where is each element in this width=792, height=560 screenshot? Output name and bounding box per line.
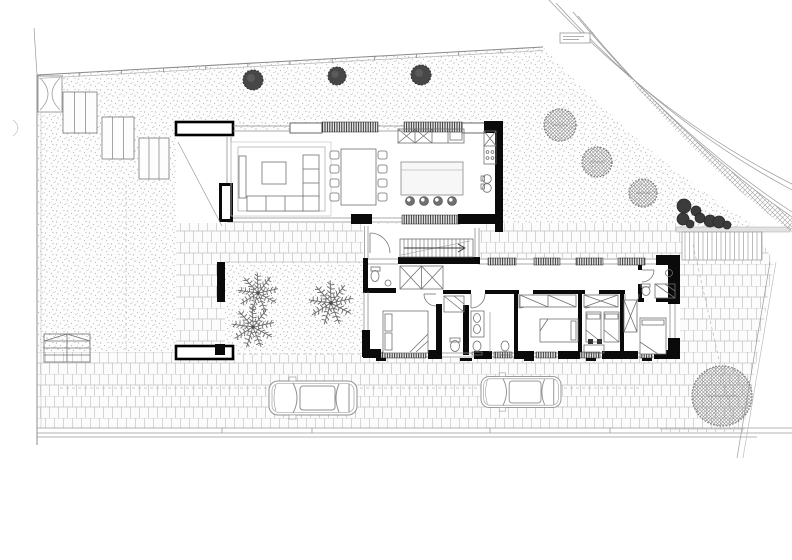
planter xyxy=(102,117,134,159)
bed xyxy=(586,312,601,342)
walkway-edge xyxy=(676,227,790,232)
entry-canopy xyxy=(176,122,233,135)
car xyxy=(269,377,357,419)
car xyxy=(481,373,561,411)
hall-floor xyxy=(363,224,480,260)
planter-box xyxy=(102,117,134,159)
bed xyxy=(604,312,619,342)
garden-steps xyxy=(682,232,762,260)
planter xyxy=(63,92,97,133)
driveway-paving xyxy=(37,352,740,428)
kitchen-island xyxy=(401,162,463,195)
floor-plan xyxy=(0,0,792,560)
courtyard-gravel xyxy=(225,262,365,355)
shrub-icon xyxy=(695,213,705,223)
tree-dark-highlight xyxy=(247,74,255,82)
planter-box xyxy=(63,92,97,133)
shrub-icon xyxy=(686,220,694,228)
bed xyxy=(640,318,666,354)
entry-gate xyxy=(38,76,62,112)
master-bedroom-furniture xyxy=(383,311,428,353)
tree-dark-highlight xyxy=(415,69,423,77)
ground-regions xyxy=(37,47,790,432)
planter-box xyxy=(139,138,169,179)
shrub-icon xyxy=(723,221,731,229)
road-sign-label xyxy=(560,33,590,43)
planter xyxy=(139,138,169,179)
hall-wardrobe xyxy=(400,266,443,289)
tree-dark-highlight xyxy=(332,71,339,78)
site-plan-canvas xyxy=(0,0,792,560)
shrub-icon xyxy=(677,199,691,213)
